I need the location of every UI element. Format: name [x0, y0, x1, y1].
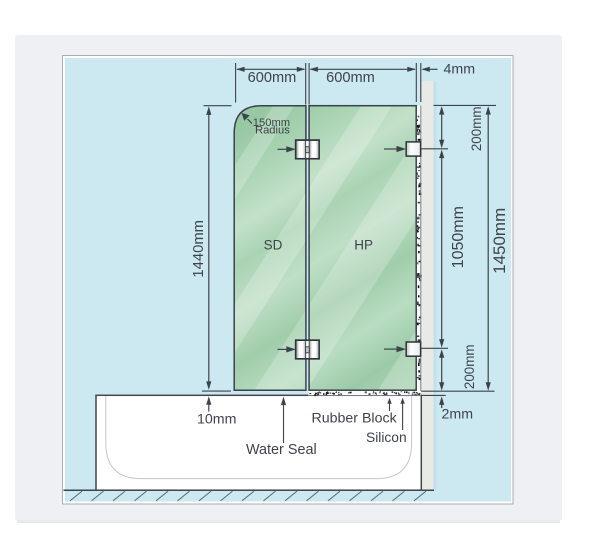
svg-text:Water Seal: Water Seal: [246, 442, 317, 458]
svg-text:200mm: 200mm: [469, 106, 484, 151]
svg-text:1050mm: 1050mm: [450, 206, 467, 268]
svg-text:HP: HP: [354, 238, 373, 253]
svg-text:2mm: 2mm: [442, 407, 474, 423]
svg-text:600mm: 600mm: [326, 70, 375, 86]
svg-text:Silicon: Silicon: [366, 430, 407, 445]
svg-text:1440mm: 1440mm: [191, 220, 207, 278]
svg-text:Rubber Block: Rubber Block: [312, 410, 398, 426]
svg-text:1450mm: 1450mm: [490, 208, 509, 274]
svg-text:Radius: Radius: [255, 124, 290, 136]
svg-text:600mm: 600mm: [248, 70, 297, 86]
svg-text:10mm: 10mm: [197, 412, 236, 428]
svg-text:200mm: 200mm: [462, 344, 477, 389]
svg-text:4mm: 4mm: [444, 62, 476, 78]
svg-text:SD: SD: [264, 238, 283, 253]
